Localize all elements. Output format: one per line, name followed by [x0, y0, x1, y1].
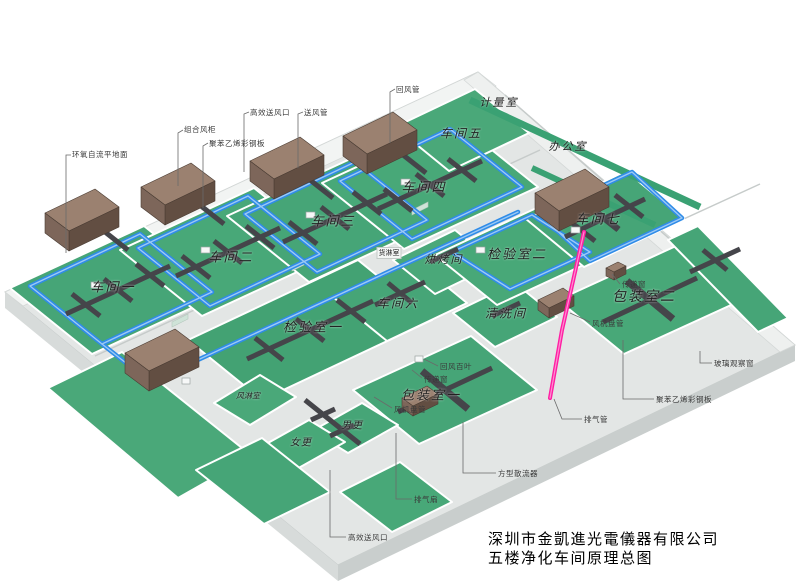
title-block: 深圳市金凱進光電儀器有限公司 五楼净化车间原理总图: [488, 530, 719, 568]
callout-return-louver: 回风百叶: [440, 361, 472, 372]
callout-ahu: 组合风柜: [184, 124, 216, 135]
callout-exhaust-fan: 排气扇: [414, 494, 438, 505]
room-label-packing-1: 包装室一: [401, 385, 461, 404]
room-label-workshop-1: 车间一: [90, 277, 135, 296]
callout-return-duct: 回风管: [396, 84, 420, 95]
callout-supply-duct: 送风管: [304, 107, 328, 118]
callout-pass-window-1: 传递窗: [424, 374, 448, 385]
company-name: 深圳市金凱進光電儀器有限公司: [488, 530, 719, 549]
room-label-workshop-2: 车间二: [208, 247, 253, 266]
drawing-title: 五楼净化车间原理总图: [488, 549, 719, 568]
callout-steel-panel-top: 聚苯乙烯彩钢板: [209, 138, 265, 149]
room-label-inspection-1: 检验室一: [283, 317, 343, 336]
room-label-female-changing: 女更: [290, 434, 312, 449]
callout-glass-window: 玻璃观察窗: [714, 358, 754, 369]
callout-steel-panel-right: 聚苯乙烯彩钢板: [656, 394, 712, 405]
callout-hepa-outlet-top: 高效送风口: [250, 107, 290, 118]
room-label-workshop-5: 车间五: [440, 125, 482, 142]
room-label-office: 办公室: [549, 138, 588, 154]
room-label-cargo-shower: 货淋室: [377, 247, 402, 259]
room-label-baking-room: 烘烤间: [425, 251, 464, 267]
room-label-cleaning-room: 清洗间: [485, 305, 527, 322]
callout-epoxy-floor: 环氧自流平地面: [72, 149, 128, 160]
room-label-workshop-3: 车间三: [310, 211, 355, 230]
room-label-male-changing: 男更: [341, 417, 363, 432]
room-label-workshop-6: 车间六: [377, 295, 419, 312]
room-label-workshop-4: 车间四: [401, 177, 446, 196]
callout-square-diffuser: 方型散流器: [498, 468, 538, 479]
room-label-air-shower: 风淋室: [236, 391, 260, 402]
isometric-cleanroom-diagram: 车间一 车间二 车间三 车间四 车间五 车间六 车间七 计量室 办公室 检验室一…: [0, 0, 800, 587]
callout-exhaust-duct: 排气管: [584, 414, 608, 425]
callout-pass-window-2: 传递窗: [622, 279, 646, 290]
room-label-metering-room: 计量室: [480, 94, 519, 110]
callout-fan-coil-1: 风机盘管: [394, 404, 426, 415]
room-label-inspection-2: 检验室二: [487, 244, 547, 263]
room-label-workshop-7: 车间七: [575, 209, 620, 228]
callout-hepa-outlet-bottom: 高效送风口: [348, 532, 388, 543]
callout-fan-coil-2: 风机盘管: [592, 318, 624, 329]
